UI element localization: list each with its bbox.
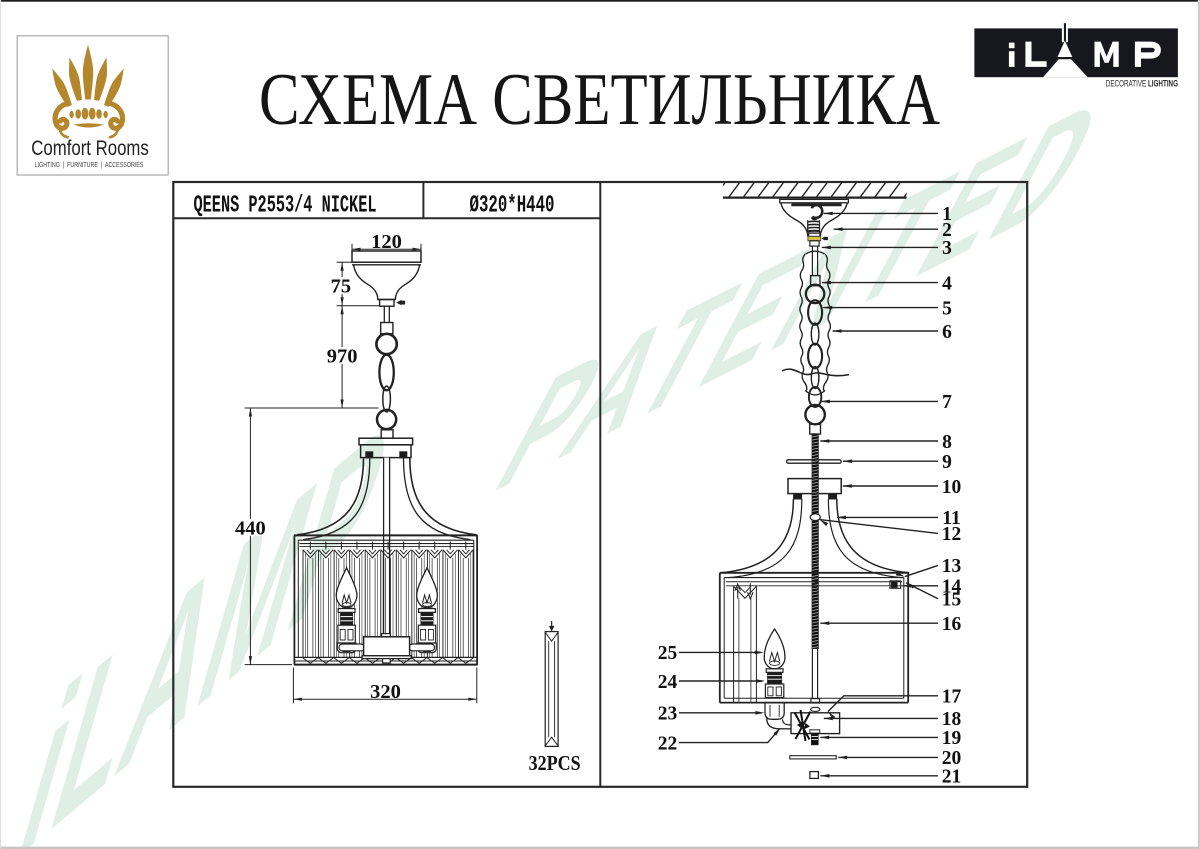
svg-text:12: 12 bbox=[942, 524, 962, 545]
svg-text:Ø320*H440: Ø320*H440 bbox=[470, 193, 555, 220]
svg-text:13: 13 bbox=[942, 556, 962, 577]
svg-text:9: 9 bbox=[942, 452, 952, 473]
svg-text:Comfort Rooms: Comfort Rooms bbox=[31, 136, 148, 160]
svg-text:23: 23 bbox=[658, 704, 678, 725]
svg-text:3: 3 bbox=[942, 238, 952, 259]
svg-text:6: 6 bbox=[942, 322, 952, 343]
svg-text:75: 75 bbox=[331, 276, 352, 298]
svg-text:970: 970 bbox=[327, 346, 358, 368]
svg-text:DECORATIVE LIGHTING: DECORATIVE LIGHTING bbox=[1106, 78, 1178, 89]
svg-text:19: 19 bbox=[942, 728, 962, 749]
svg-text:120: 120 bbox=[371, 231, 402, 253]
svg-text:22: 22 bbox=[658, 733, 678, 754]
svg-text:4: 4 bbox=[942, 273, 952, 294]
svg-text:32PCS: 32PCS bbox=[529, 751, 581, 775]
svg-text:25: 25 bbox=[658, 643, 678, 664]
svg-text:8: 8 bbox=[942, 432, 952, 453]
svg-text:16: 16 bbox=[942, 614, 962, 635]
svg-text:18: 18 bbox=[942, 709, 962, 730]
svg-text:21: 21 bbox=[942, 767, 962, 788]
svg-text:17: 17 bbox=[942, 687, 962, 708]
svg-text:QEENS P2553/4 NICKEL: QEENS P2553/4 NICKEL bbox=[194, 193, 377, 220]
svg-text:15: 15 bbox=[942, 590, 962, 611]
svg-text:7: 7 bbox=[942, 392, 952, 413]
svg-text:440: 440 bbox=[235, 517, 266, 539]
svg-text:320: 320 bbox=[370, 681, 401, 703]
svg-text:10: 10 bbox=[942, 477, 962, 498]
svg-text:24: 24 bbox=[658, 672, 678, 693]
svg-text:LIGHTING | FURNITURE | ACC: LIGHTING | FURNITURE | ACCESSORIES bbox=[35, 160, 144, 169]
svg-text:5: 5 bbox=[942, 298, 952, 319]
svg-text:СХЕМА СВЕТИЛЬНИКА: СХЕМА СВЕТИЛЬНИКА bbox=[259, 59, 940, 141]
